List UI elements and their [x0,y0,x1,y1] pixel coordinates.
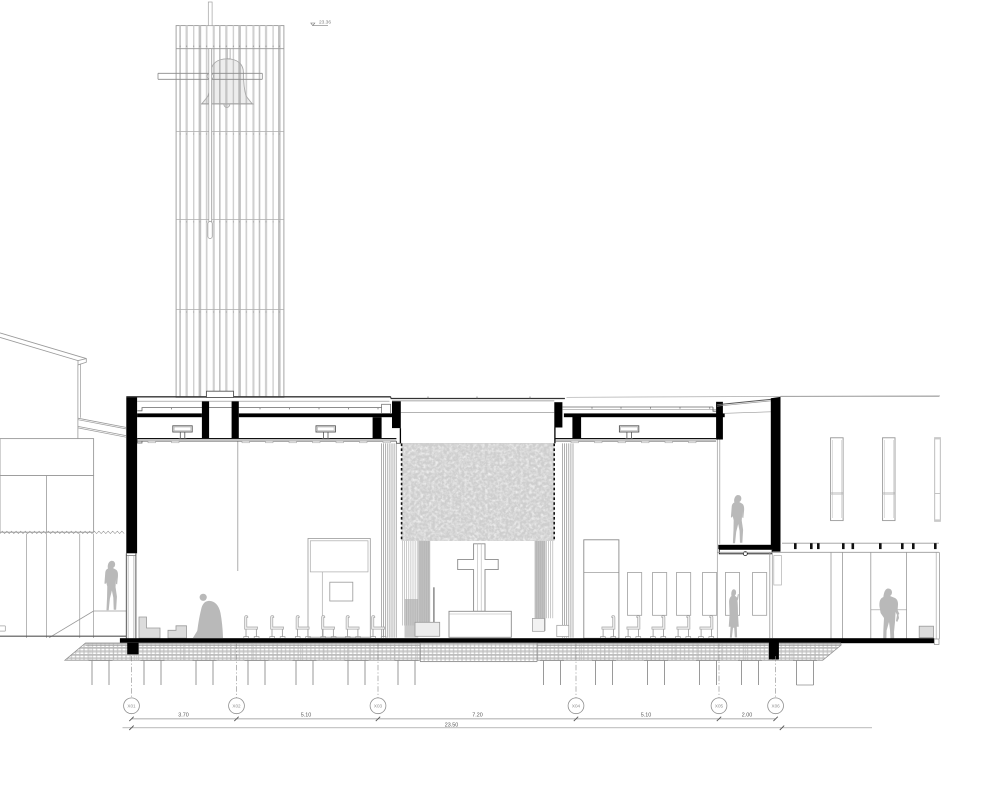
svg-text:X03: X03 [374,704,383,709]
svg-text:X02: X02 [232,704,241,709]
svg-text:X06: X06 [772,704,781,709]
svg-text:7.20: 7.20 [472,712,483,718]
svg-text:2.00: 2.00 [742,712,753,718]
svg-text:5.10: 5.10 [641,712,652,718]
svg-text:23.36: 23.36 [319,19,331,25]
svg-text:X05: X05 [715,704,724,709]
svg-text:5.10: 5.10 [301,712,312,718]
svg-text:X04: X04 [572,704,581,709]
svg-text:X01: X01 [127,704,136,709]
svg-text:23.50: 23.50 [445,722,459,728]
svg-text:3.70: 3.70 [178,712,189,718]
